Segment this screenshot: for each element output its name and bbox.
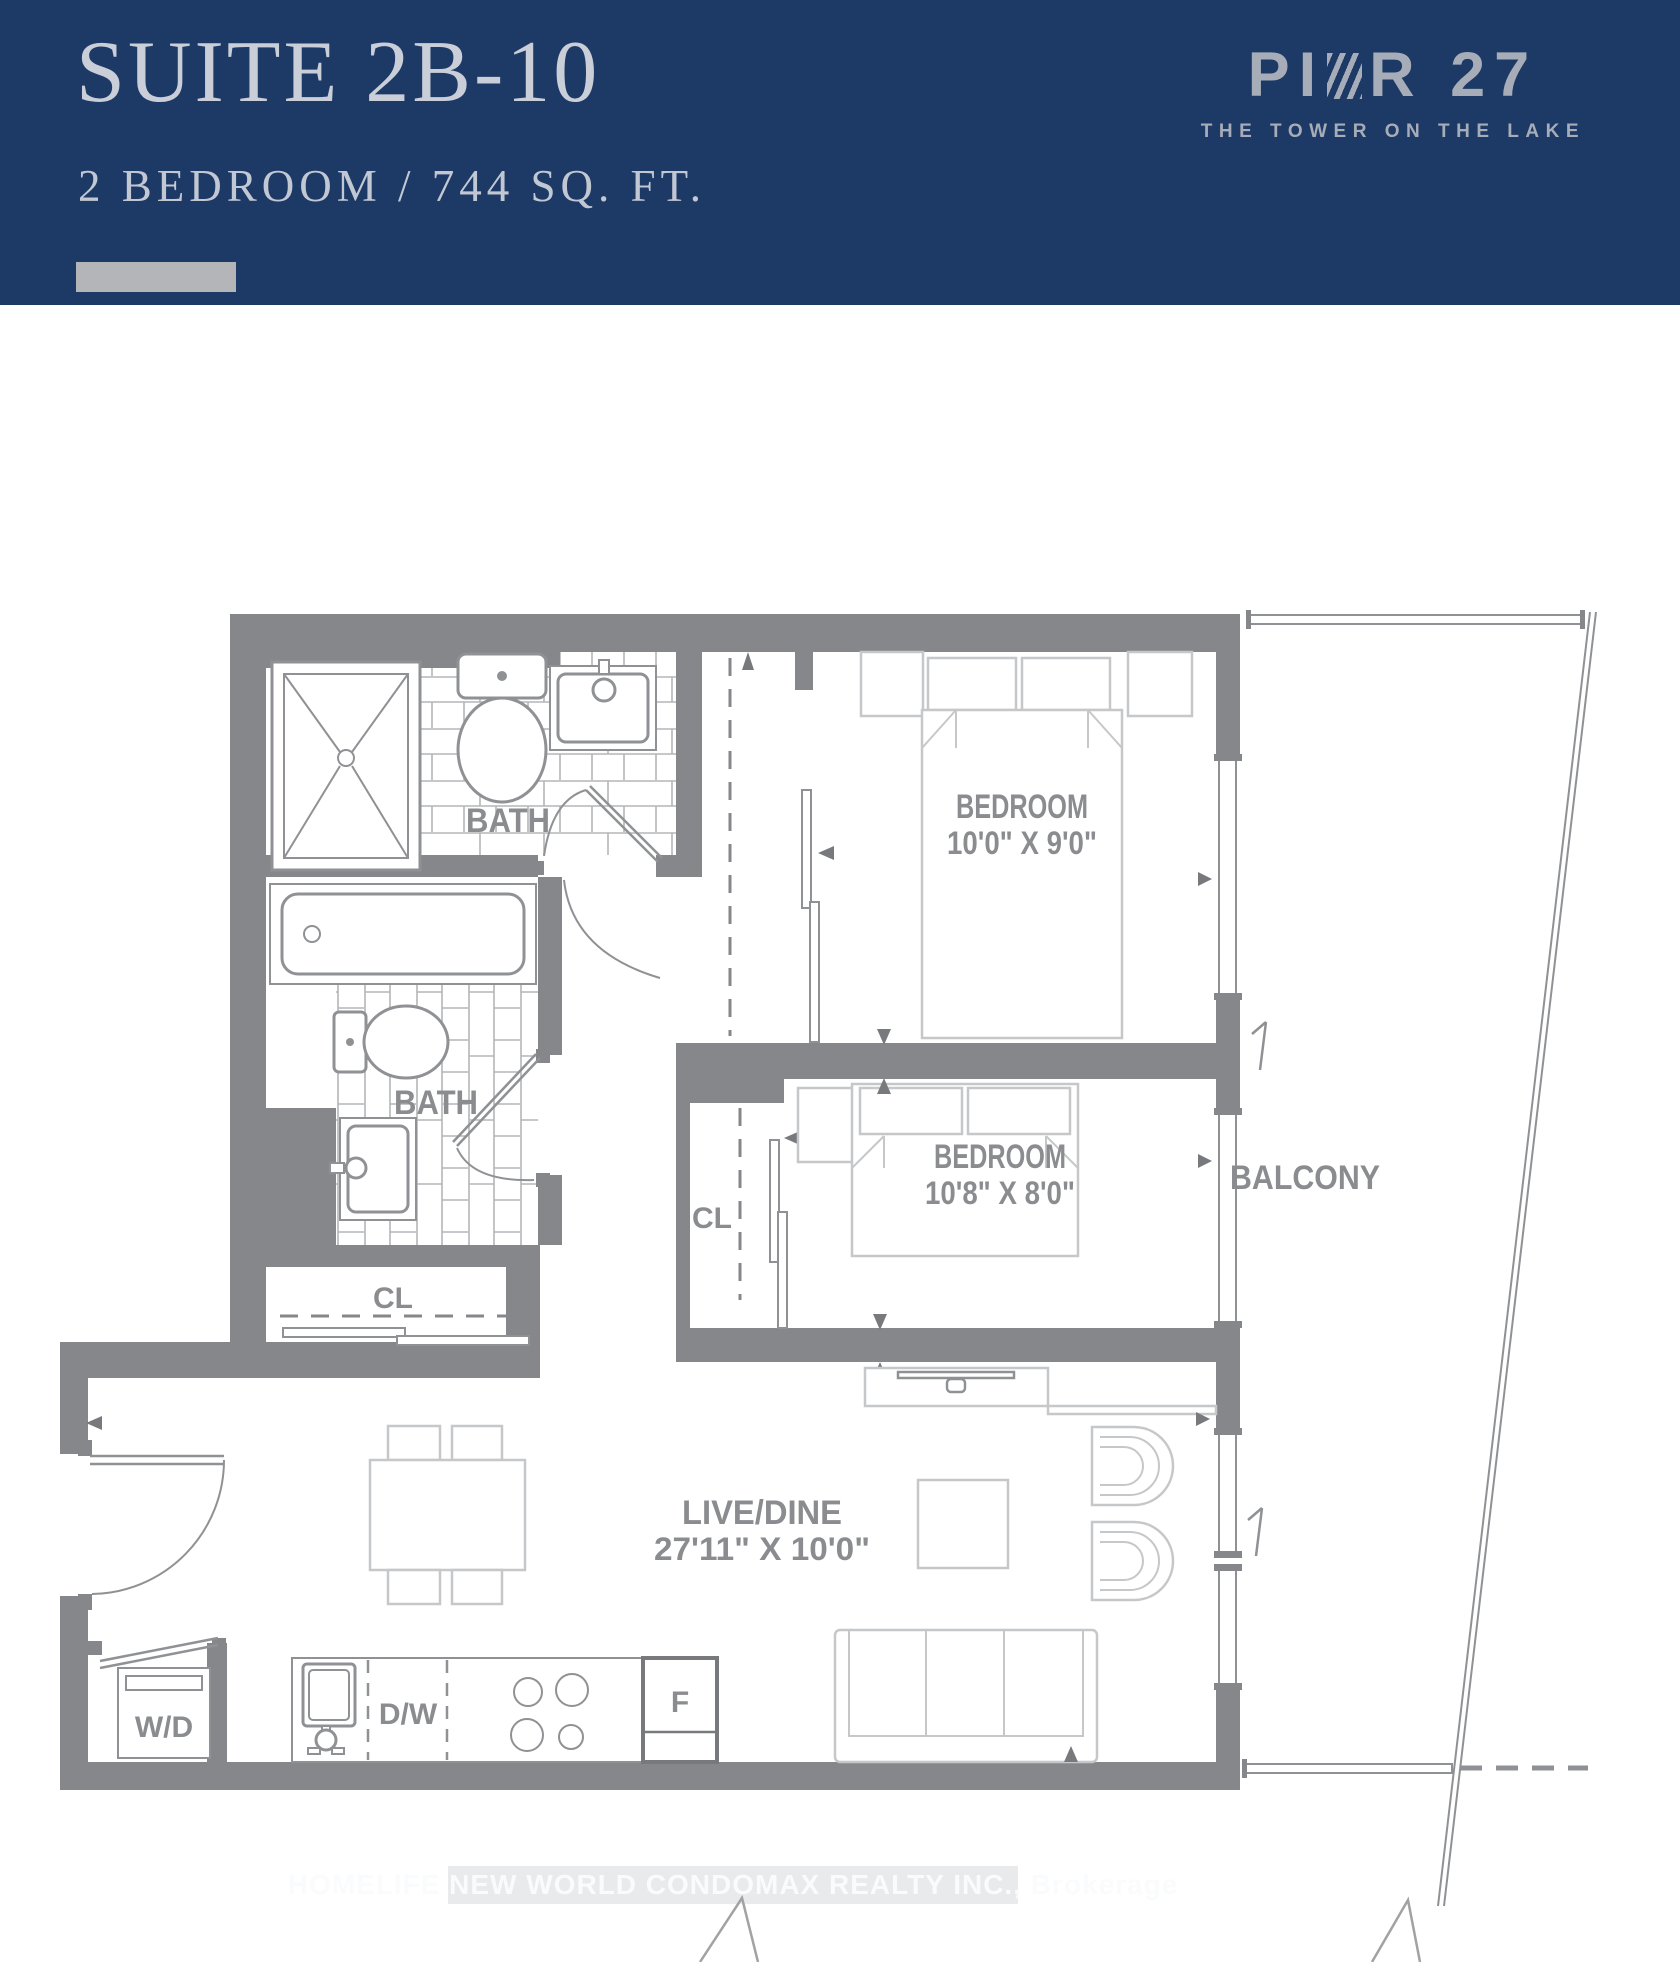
wd-door-leaf xyxy=(100,1638,218,1668)
bath2-door-post-bottom xyxy=(536,1173,550,1187)
bedroom1-label: BEDROOM xyxy=(956,788,1088,826)
closet2-slider-b xyxy=(778,1212,787,1328)
window-wall xyxy=(1214,754,1242,1690)
fridge: F xyxy=(643,1658,717,1762)
watermark: HOMELIFE NEW WORLD CONDOMAX REALTY INC.,… xyxy=(288,1866,1179,1904)
bedroom2-pillow-left xyxy=(860,1088,962,1134)
bedroom2: BEDROOM 10'8" X 8'0" xyxy=(798,1029,1212,1378)
toilet-1 xyxy=(458,654,546,802)
window-bedroom1 xyxy=(1214,754,1242,1000)
wall-bath2-south xyxy=(266,1245,540,1267)
wall-right-seg-a xyxy=(1216,614,1240,754)
bedroom1-slider-arrow xyxy=(818,846,834,860)
vanity-sink-1 xyxy=(550,660,656,750)
wall-left-lower-b xyxy=(60,1596,88,1790)
balcony-door-mark-upper xyxy=(1252,1022,1266,1070)
bedroom2-label: BEDROOM xyxy=(934,1138,1066,1176)
bedroom1-closet xyxy=(730,652,834,1042)
balcony-railing-bottom xyxy=(1244,1764,1452,1773)
wall-bedroom2-south xyxy=(676,1328,1240,1362)
wall-bath2-left-chunk xyxy=(266,1108,336,1248)
crop-triangle-right xyxy=(1372,1900,1420,1962)
wall-jog xyxy=(60,1342,540,1378)
bedroom1-dims: 10'0" X 9'0" xyxy=(947,825,1097,861)
bedroom1-nightstand-right xyxy=(1128,652,1192,716)
bath1-label: BATH xyxy=(466,802,550,840)
floorplan-page: SUITE 2B-10 2 BEDROOM / 744 SQ. FT. PIR … xyxy=(0,0,1680,1962)
bath2-label: BATH xyxy=(394,1084,478,1122)
armchair-2 xyxy=(1092,1522,1173,1600)
entry-door-leaf xyxy=(90,1456,224,1464)
wall-bath1-right xyxy=(676,650,702,855)
vanity-sink-2 xyxy=(330,1118,416,1220)
wall-left-upper xyxy=(230,614,266,1378)
watermark-text: HOMELIFE NEW WORLD CONDOMAX REALTY INC.,… xyxy=(288,1869,1179,1900)
bedroom2-pillow-right xyxy=(968,1088,1070,1134)
closet1: CL xyxy=(280,1282,532,1345)
dw-label: D/W xyxy=(379,1698,438,1731)
kitchen: D/W F xyxy=(292,1658,717,1762)
closet2-label: CL xyxy=(692,1202,732,1235)
entry-arrow xyxy=(86,1416,102,1430)
balcony-door-mark-lower xyxy=(1248,1508,1262,1556)
media-shelf xyxy=(1048,1406,1216,1414)
crop-triangle-left xyxy=(700,1898,758,1962)
entry-door-swing xyxy=(92,1460,224,1594)
bath1-door-post-left xyxy=(530,861,544,875)
balcony-slanted-edge xyxy=(1438,612,1596,1906)
fridge-label: F xyxy=(671,1686,689,1719)
bedroom1-pillow-right xyxy=(1022,658,1110,710)
sofa xyxy=(835,1630,1097,1762)
balcony-label: BALCONY xyxy=(1230,1159,1380,1197)
wd-label: W/D xyxy=(135,1711,193,1744)
dining-set xyxy=(370,1426,525,1604)
coffee-table xyxy=(918,1480,1008,1568)
bedroom1-pillow-left xyxy=(928,658,1016,710)
livedine-dims: 27'11" X 10'0" xyxy=(654,1531,870,1567)
shower-stall xyxy=(272,662,420,870)
wall-bedroom-divider-block xyxy=(676,1043,784,1103)
closet1-label: CL xyxy=(373,1282,413,1315)
bedroom1-mattress xyxy=(922,710,1122,1038)
bedroom2-dims: 10'8" X 8'0" xyxy=(925,1175,1075,1211)
bedroom1-window-arrow xyxy=(1198,872,1212,886)
media-console xyxy=(865,1368,1216,1414)
bedroom1-nightstand-left xyxy=(861,652,923,716)
closet1-slider-a xyxy=(283,1328,405,1337)
livedine-label: LIVE/DINE xyxy=(682,1494,842,1532)
floorplan-drawing: BALCONY xyxy=(0,0,1680,1962)
bedroom1-slider-b xyxy=(810,902,819,1042)
bedroom1-closet-arrow-up xyxy=(742,652,754,670)
wd-door-post-left xyxy=(88,1641,102,1655)
bathtub xyxy=(270,884,536,984)
window-bedroom2 xyxy=(1214,1108,1242,1328)
wall-right-seg-d xyxy=(1216,1690,1240,1790)
wall-bath2-right-a xyxy=(538,877,562,1055)
wall-closet2-left xyxy=(676,1103,690,1328)
bedroom1: BEDROOM 10'0" X 9'0" xyxy=(861,652,1212,1038)
bedroom2-window-arrow xyxy=(1198,1154,1212,1168)
bottom-crop-marks xyxy=(700,1898,1420,1962)
entry-door xyxy=(86,1416,224,1594)
bedroom2-nightstand xyxy=(798,1088,854,1162)
bedroom1-slider-a xyxy=(802,790,811,908)
balcony: BALCONY xyxy=(1230,610,1596,1906)
balcony-railing-top xyxy=(1248,615,1584,624)
entry-door-post-top xyxy=(78,1440,92,1456)
washer-dryer-closet: W/D xyxy=(100,1638,218,1758)
entry-door-post-bottom xyxy=(78,1594,92,1610)
wall-bottom xyxy=(88,1762,1238,1790)
wall-bedroom1-closet-stub xyxy=(795,614,813,690)
bath1-door-post-right xyxy=(656,861,670,875)
window-living-b xyxy=(1214,1564,1242,1690)
closet2: CL xyxy=(692,1108,800,1328)
armchair-1 xyxy=(1092,1427,1173,1505)
toilet-2 xyxy=(334,1006,448,1078)
closet1-slider-b xyxy=(397,1336,529,1345)
window-living-a xyxy=(1214,1428,1242,1558)
wall-closet1-right xyxy=(506,1245,540,1378)
